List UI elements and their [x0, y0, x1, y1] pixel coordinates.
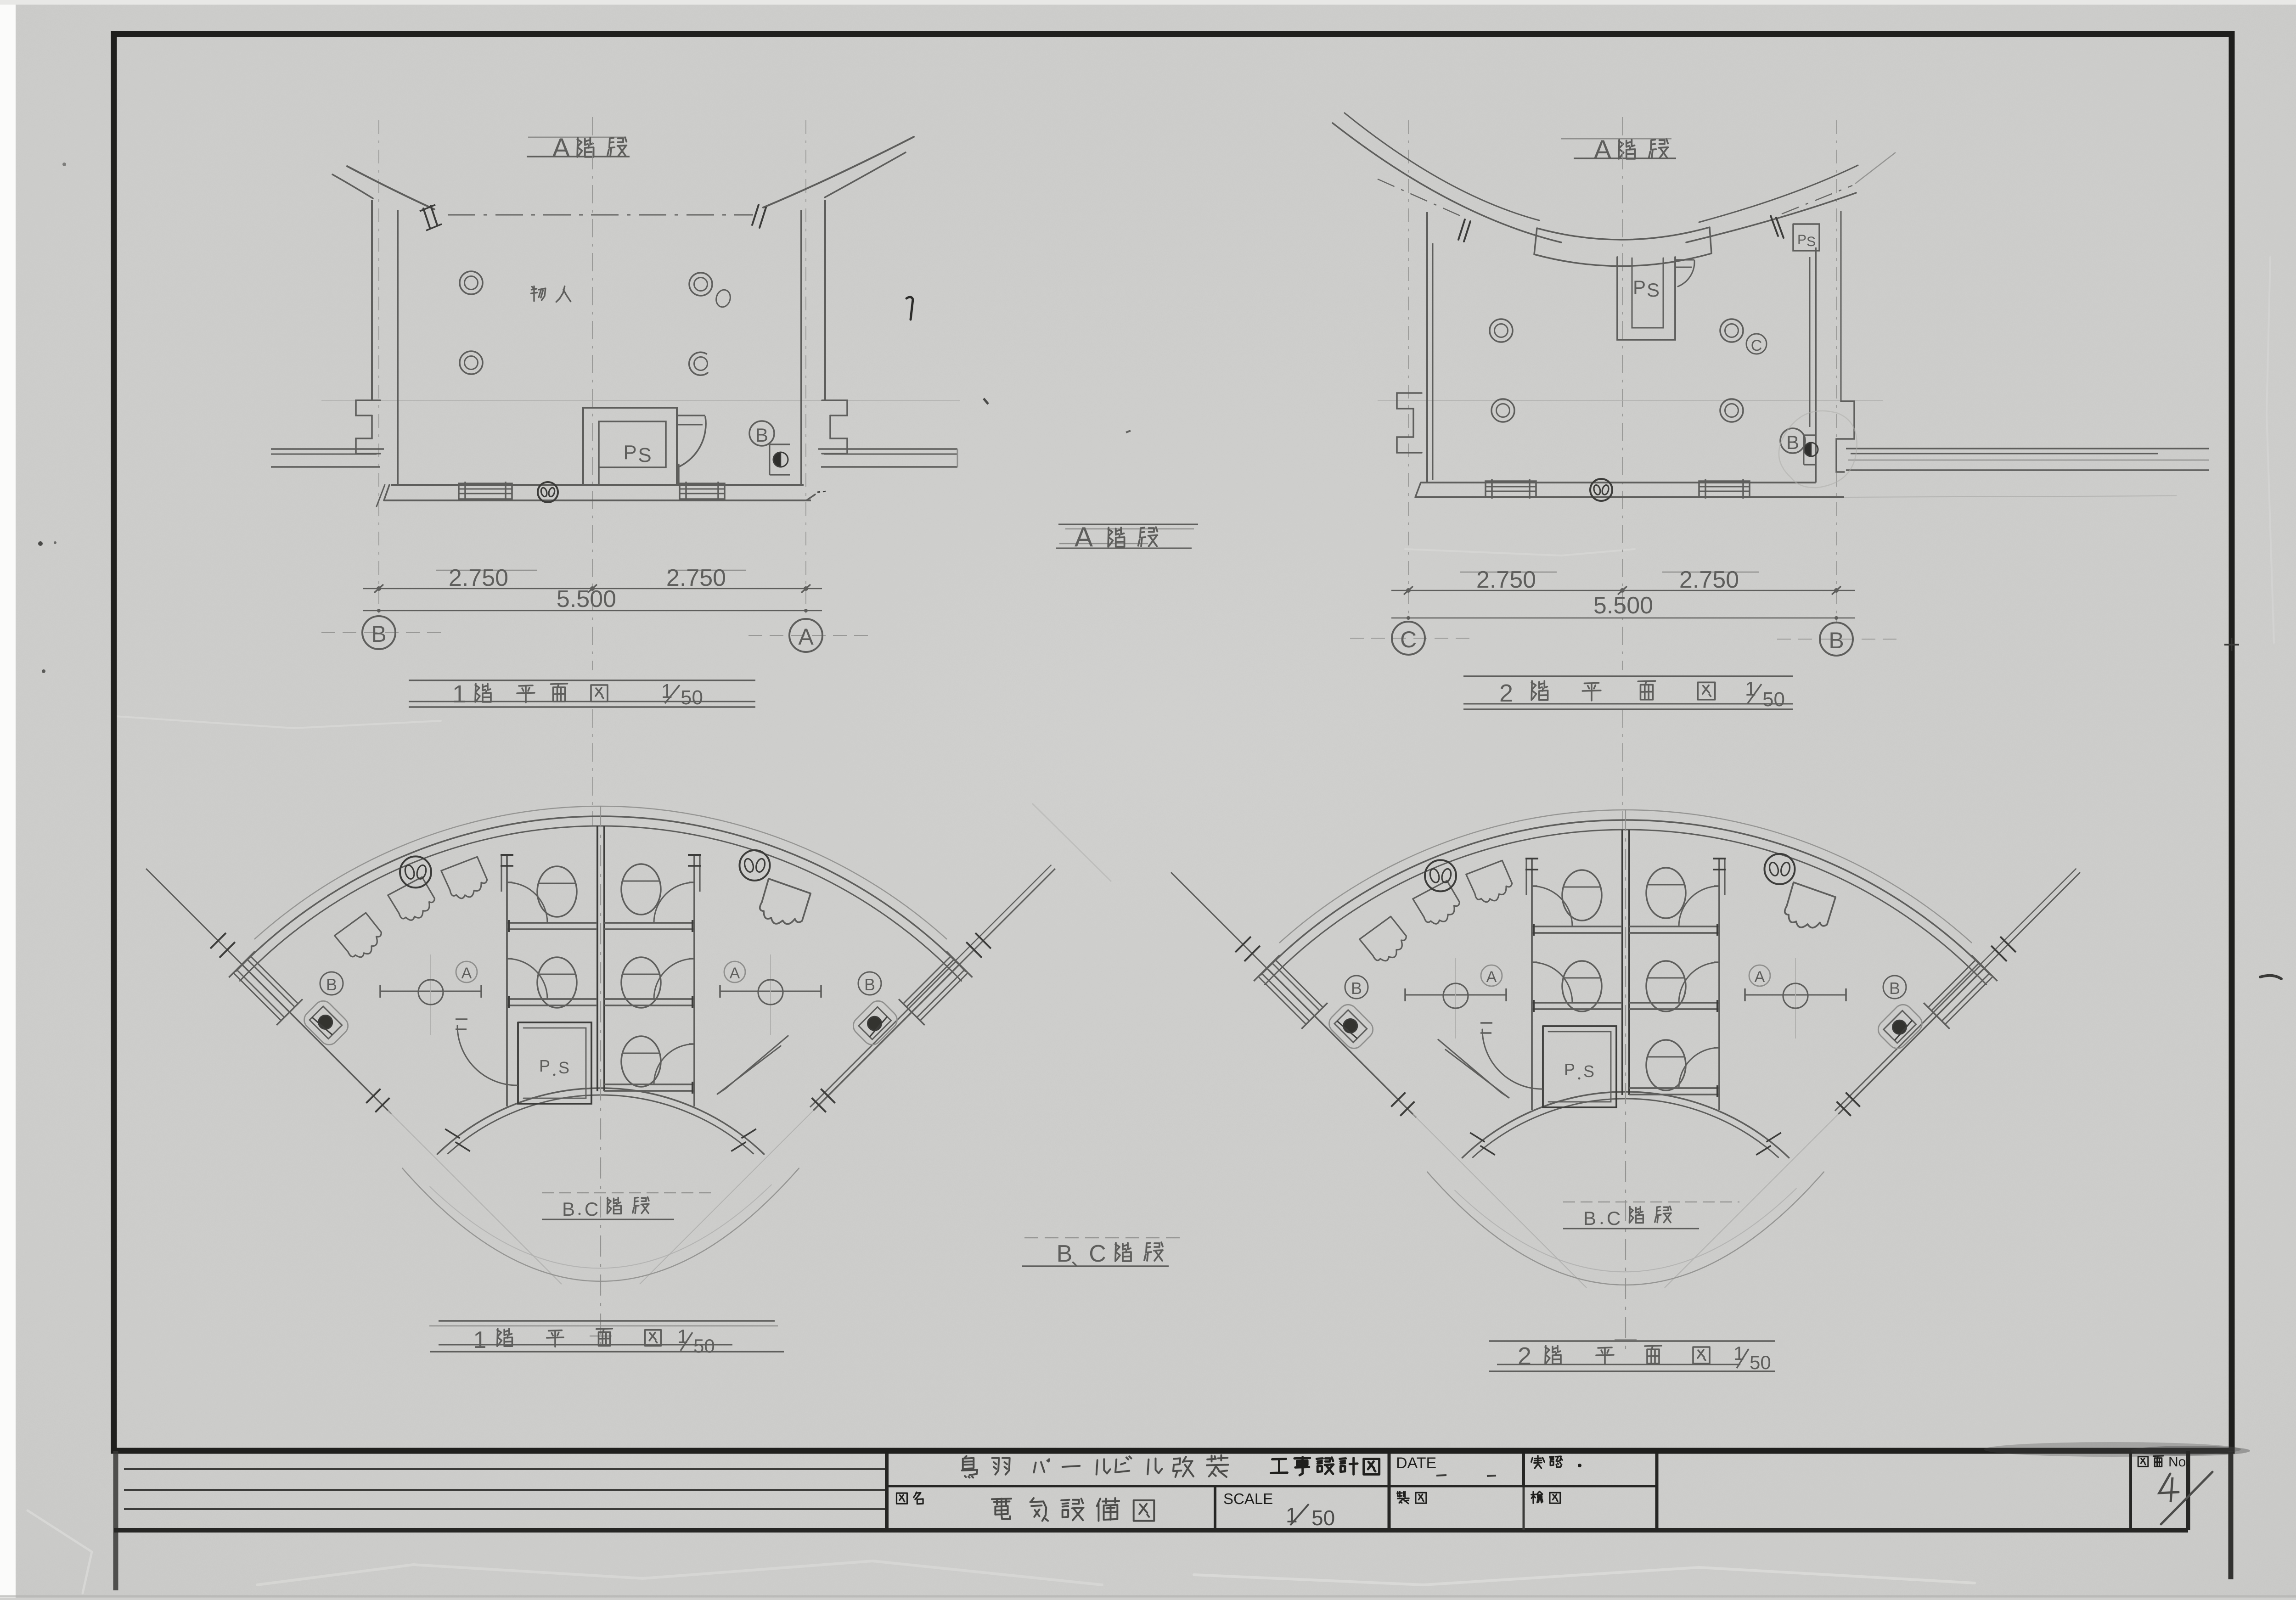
svg-text:S: S — [558, 1058, 569, 1077]
svg-text:C: C — [1607, 1207, 1621, 1229]
svg-text:5.500: 5.500 — [1593, 592, 1653, 619]
svg-text:P: P — [1633, 276, 1646, 298]
svg-text:50: 50 — [681, 686, 703, 709]
svg-text:B: B — [1583, 1207, 1596, 1229]
svg-text:P: P — [1797, 232, 1806, 247]
svg-text:B: B — [1889, 979, 1900, 998]
svg-text:A: A — [1075, 522, 1093, 552]
svg-text:2.750: 2.750 — [1476, 567, 1536, 593]
svg-text:50: 50 — [1750, 1352, 1771, 1373]
svg-text:S: S — [1647, 279, 1660, 301]
svg-text:P: P — [623, 441, 636, 464]
svg-text:A: A — [1755, 968, 1765, 986]
svg-text:SCALE: SCALE — [1223, 1490, 1273, 1507]
svg-text:B: B — [1786, 432, 1799, 453]
svg-text:1: 1 — [1745, 678, 1756, 700]
svg-text:B: B — [326, 975, 337, 994]
svg-text:1: 1 — [452, 680, 466, 708]
svg-text:S: S — [1583, 1062, 1594, 1081]
svg-text:2: 2 — [1499, 679, 1513, 707]
svg-text:No.: No. — [2168, 1454, 2190, 1470]
svg-text:50: 50 — [693, 1335, 715, 1357]
svg-text:2.750: 2.750 — [666, 565, 726, 591]
svg-text:B: B — [371, 621, 386, 647]
svg-text:1: 1 — [661, 680, 672, 702]
svg-text:B: B — [755, 424, 768, 446]
svg-text:P: P — [539, 1056, 550, 1075]
svg-text:S: S — [638, 444, 651, 466]
svg-text:A: A — [798, 624, 814, 650]
svg-text:A: A — [461, 965, 472, 982]
svg-text:A: A — [552, 133, 570, 163]
svg-text:50: 50 — [1311, 1506, 1335, 1530]
svg-text:B: B — [1057, 1241, 1073, 1267]
svg-text:2: 2 — [1518, 1342, 1531, 1370]
svg-text:S: S — [1806, 234, 1816, 249]
svg-text:5.500: 5.500 — [557, 586, 616, 612]
svg-text:C: C — [585, 1198, 598, 1220]
svg-text:2.750: 2.750 — [1679, 567, 1739, 593]
svg-text:B: B — [864, 975, 875, 994]
svg-text:C: C — [1751, 337, 1762, 354]
svg-text:A: A — [730, 965, 740, 982]
svg-text:B: B — [562, 1198, 575, 1220]
svg-text:A: A — [1594, 135, 1612, 165]
svg-text:C: C — [1089, 1241, 1106, 1267]
svg-text:50: 50 — [1762, 688, 1785, 711]
svg-text:B: B — [1829, 628, 1844, 653]
svg-text:2.750: 2.750 — [449, 565, 508, 591]
svg-text:1: 1 — [473, 1327, 487, 1353]
svg-text:B: B — [1351, 979, 1362, 998]
svg-text:DATE: DATE — [1396, 1454, 1436, 1472]
svg-text:1: 1 — [1733, 1342, 1744, 1364]
svg-text:P: P — [1564, 1060, 1575, 1079]
svg-text:1: 1 — [677, 1325, 688, 1347]
svg-text:C: C — [1400, 627, 1417, 652]
svg-text:A: A — [1486, 968, 1497, 986]
